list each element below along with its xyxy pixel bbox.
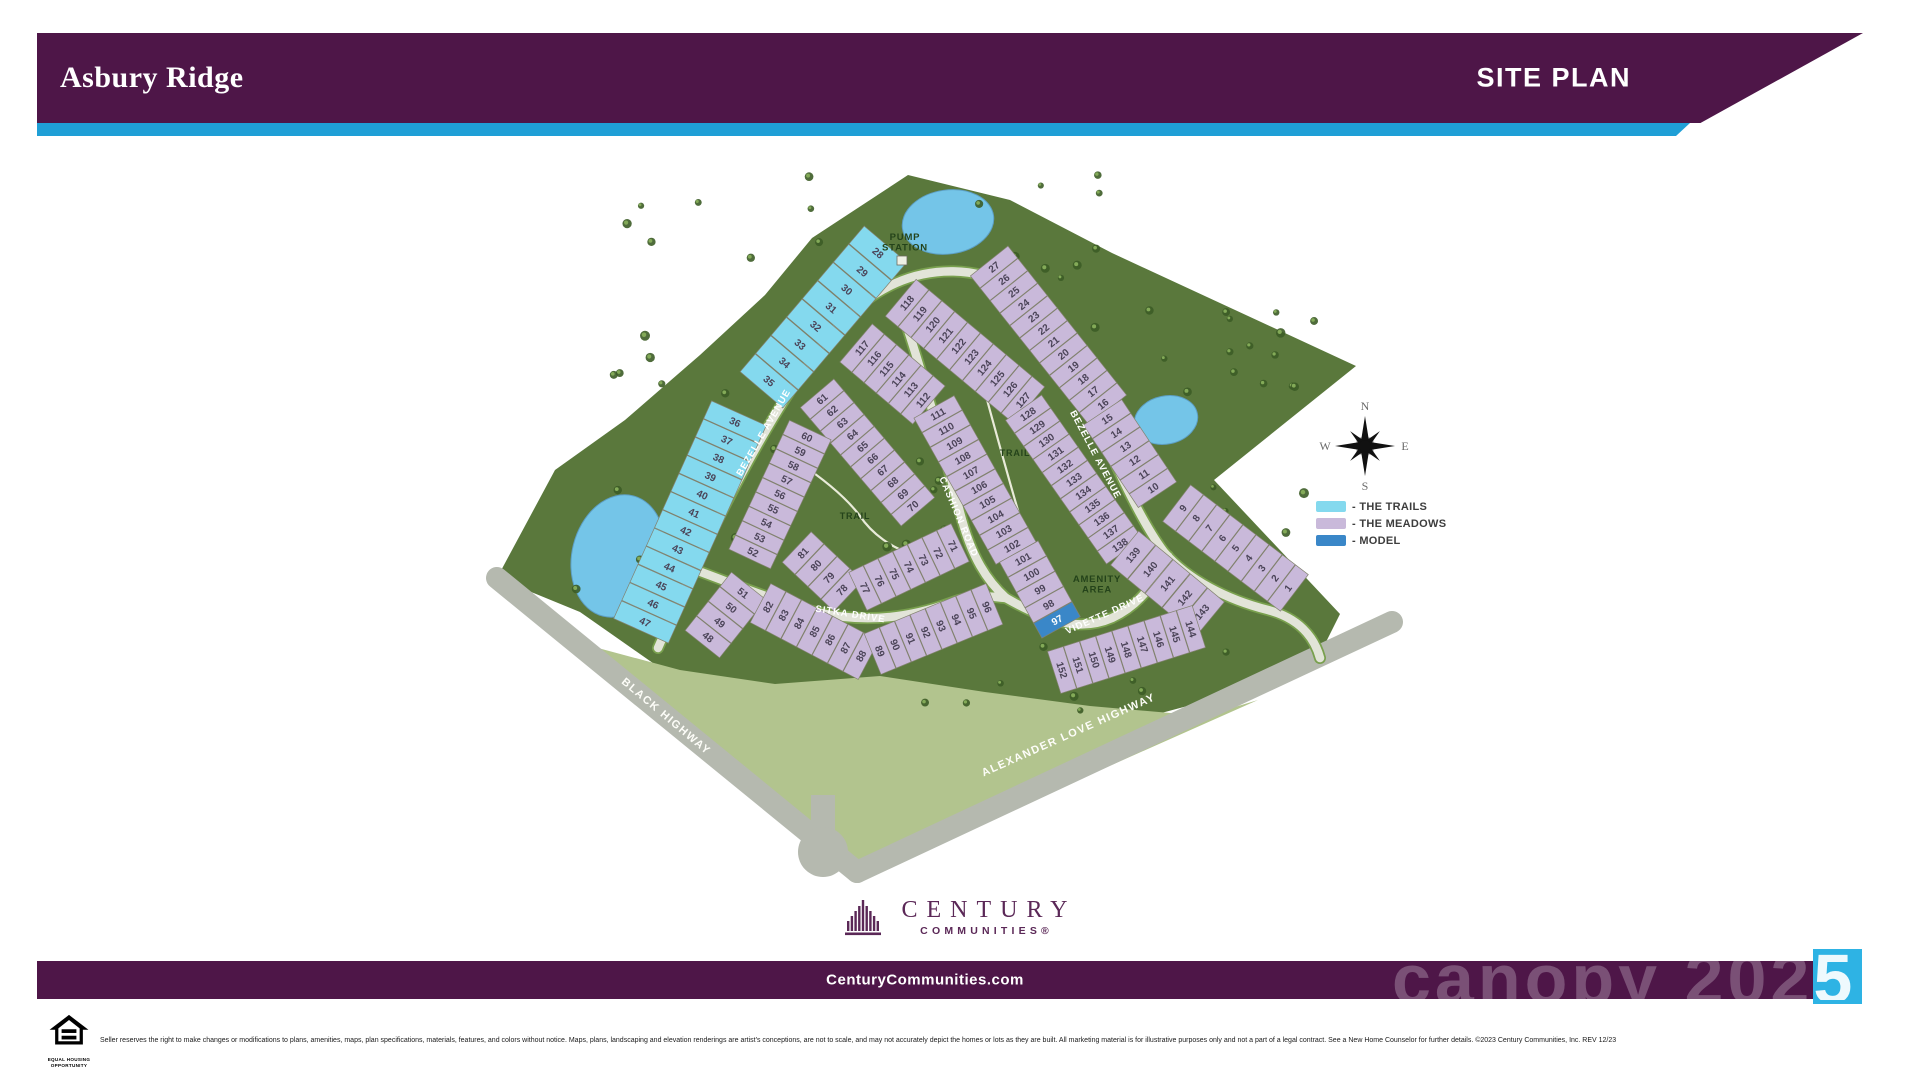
tree-highlight xyxy=(722,390,726,394)
tree-highlight xyxy=(1311,318,1315,322)
tree-highlight xyxy=(1147,308,1151,312)
tree-highlight xyxy=(1301,490,1305,494)
tree-highlight xyxy=(1041,644,1045,648)
legend-item-trails: - THE TRAILS xyxy=(1316,498,1446,515)
tree-highlight xyxy=(1292,384,1296,388)
tree-highlight xyxy=(976,201,980,205)
tree-highlight xyxy=(1223,309,1227,313)
canopy-watermark: canopy 2025 ˆ xyxy=(1392,944,1862,1000)
tree-highlight xyxy=(649,239,653,243)
legend-item-meadows: - THE MEADOWS xyxy=(1316,515,1446,532)
site-plan-page: Asbury Ridge SITE PLAN 28293031323334353… xyxy=(0,0,1920,1080)
watermark-text: canopy 202 xyxy=(1392,944,1813,1000)
tree-highlight xyxy=(624,221,628,225)
equal-housing-icon xyxy=(48,1014,90,1051)
tree-highlight xyxy=(1038,183,1041,186)
legend-swatch-meadows xyxy=(1316,518,1346,529)
tree-icon xyxy=(638,203,644,209)
compass-rose-icon: N E S W xyxy=(1315,396,1415,496)
legal-disclaimer: Seller reserves the right to make change… xyxy=(100,1037,1630,1044)
tree-highlight xyxy=(771,446,775,450)
tree-highlight xyxy=(1283,530,1287,534)
tree-highlight xyxy=(1272,352,1275,355)
tree-highlight xyxy=(642,333,646,337)
tree-highlight xyxy=(1223,649,1226,652)
tree-highlight xyxy=(998,681,1001,684)
tree-highlight xyxy=(1092,324,1096,328)
canopy-caret-mark: ˆ xyxy=(1476,944,1491,978)
compass-south-label: S xyxy=(1362,479,1369,493)
tree-highlight xyxy=(1231,369,1235,373)
watermark-digit: 5 xyxy=(1813,944,1856,1000)
tree-highlight xyxy=(922,700,926,704)
tree-highlight xyxy=(1227,316,1230,319)
compass-north-label: N xyxy=(1361,399,1370,413)
tree-highlight xyxy=(1162,356,1165,359)
tree-highlight xyxy=(1130,678,1133,681)
tree-highlight xyxy=(1274,310,1277,313)
tree-icon xyxy=(1038,183,1044,189)
tree-highlight xyxy=(1097,191,1100,194)
logo-century-text: CENTURY xyxy=(892,898,1076,922)
tree-highlight xyxy=(1042,265,1046,269)
legend-swatch-trails xyxy=(1316,501,1346,512)
map-legend: - THE TRAILS - THE MEADOWS - MODEL xyxy=(1316,498,1446,549)
tree-highlight xyxy=(647,354,651,358)
tree-highlight xyxy=(1078,708,1081,711)
compass-east-label: E xyxy=(1401,439,1408,453)
equal-housing-line1: EQUAL HOUSING xyxy=(48,1057,91,1062)
tree-highlight xyxy=(611,372,615,376)
equal-housing-logo: EQUAL HOUSING OPPORTUNITY xyxy=(34,1014,104,1068)
tree-highlight xyxy=(659,381,662,384)
tree-highlight xyxy=(884,543,888,547)
tree-highlight xyxy=(573,586,577,590)
tree-highlight xyxy=(917,459,921,463)
tree-highlight xyxy=(748,255,752,259)
culdesac-bulb xyxy=(798,827,848,877)
legend-label-model: - MODEL xyxy=(1352,535,1401,547)
map-label: TRAIL xyxy=(1000,448,1031,458)
century-building-icon xyxy=(843,899,883,936)
map-label: TRAIL xyxy=(840,511,871,521)
tree-highlight xyxy=(806,174,810,178)
tree-highlight xyxy=(639,203,642,206)
tree-icon xyxy=(1210,484,1216,490)
pump-station-structure xyxy=(897,256,907,265)
tree-highlight xyxy=(1211,485,1214,488)
century-communities-logo: CENTURY COMMUNITIES® xyxy=(830,898,1090,937)
tree-highlight xyxy=(615,487,619,491)
tree-highlight xyxy=(808,206,811,209)
legend-swatch-model xyxy=(1316,535,1346,546)
tree-highlight xyxy=(1261,381,1264,384)
tree-highlight xyxy=(1074,262,1078,266)
legend-label-meadows: - THE MEADOWS xyxy=(1352,518,1446,530)
tree-highlight xyxy=(1095,172,1098,175)
logo-communities-text: COMMUNITIES® xyxy=(916,925,1053,937)
tree-highlight xyxy=(1059,275,1062,278)
tree-highlight xyxy=(696,200,699,203)
tree-highlight xyxy=(1278,330,1282,334)
tree-highlight xyxy=(964,700,967,703)
tree-highlight xyxy=(617,370,621,374)
tree-highlight xyxy=(1139,688,1143,692)
tree-highlight xyxy=(816,239,820,243)
tree-highlight xyxy=(1093,246,1097,250)
compass-west-label: W xyxy=(1319,439,1331,453)
tree-highlight xyxy=(1247,343,1250,346)
tree-highlight xyxy=(931,487,934,490)
legend-item-model: - MODEL xyxy=(1316,532,1446,549)
legend-label-trails: - THE TRAILS xyxy=(1352,501,1427,513)
tree-highlight xyxy=(1185,389,1189,393)
equal-housing-line2: OPPORTUNITY xyxy=(51,1063,87,1068)
tree-highlight xyxy=(1227,349,1230,352)
tree-highlight xyxy=(1071,693,1075,697)
